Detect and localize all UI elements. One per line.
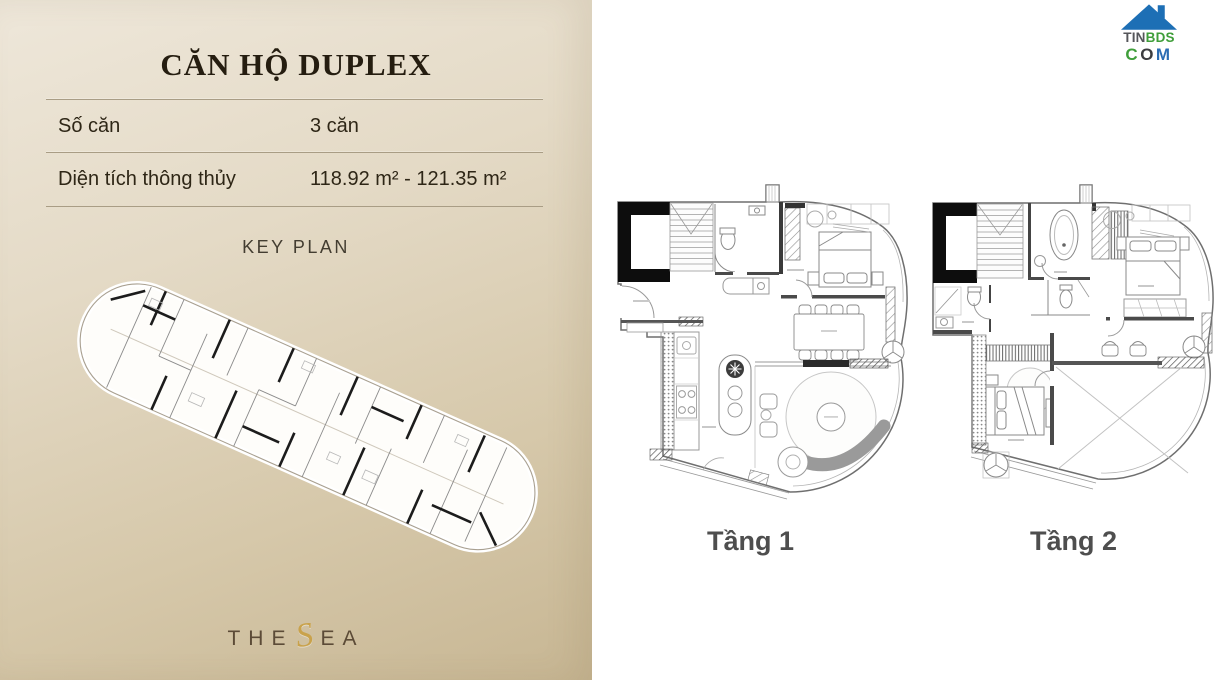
key-plan-heading: KEY PLAN [0, 237, 592, 258]
tinbds-watermark: TINBDS COM [1116, 4, 1182, 63]
logo-row1: TINBDS [1116, 31, 1182, 45]
info-panel: CĂN HỘ DUPLEX Số căn 3 căn Diện tích thô… [0, 0, 592, 680]
floor-plan-tang-1 [603, 172, 921, 520]
spec-value-units: 3 căn [310, 115, 543, 138]
spec-table: Số căn 3 căn Diện tích thông thủy 118.92… [46, 99, 543, 207]
brand-text-ea: EA [320, 627, 364, 651]
key-plan-drawing [52, 262, 564, 572]
house-roof-icon [1121, 4, 1177, 31]
page-title: CĂN HỘ DUPLEX [0, 47, 592, 83]
spec-label-units: Số căn [46, 115, 310, 138]
logo-o: O [1140, 45, 1156, 64]
spec-row-area: Diện tích thông thủy 118.92 m² - 121.35 … [46, 152, 543, 207]
brand-text-the: THE [227, 627, 293, 651]
floorplan-sheet: CĂN HỘ DUPLEX Số căn 3 căn Diện tích thô… [0, 0, 1226, 680]
brand-script-s: S [295, 625, 315, 647]
floor-label-tang-2: Tầng 2 [1030, 526, 1117, 557]
floor-label-tang-1: Tầng 1 [707, 526, 794, 557]
logo-row2: COM [1116, 46, 1182, 63]
spec-value-area: 118.92 m² - 121.35 m² [310, 168, 543, 191]
floor-plan-tang-2 [928, 175, 1216, 520]
spec-row-units: Số căn 3 căn [46, 99, 543, 152]
the-sea-logo: THE S EA [0, 626, 592, 652]
logo-m: M [1156, 45, 1173, 64]
logo-tin: TIN [1123, 30, 1145, 45]
spec-label-area: Diện tích thông thủy [46, 168, 310, 191]
logo-bds: BDS [1146, 30, 1175, 45]
logo-c: C [1125, 45, 1140, 64]
